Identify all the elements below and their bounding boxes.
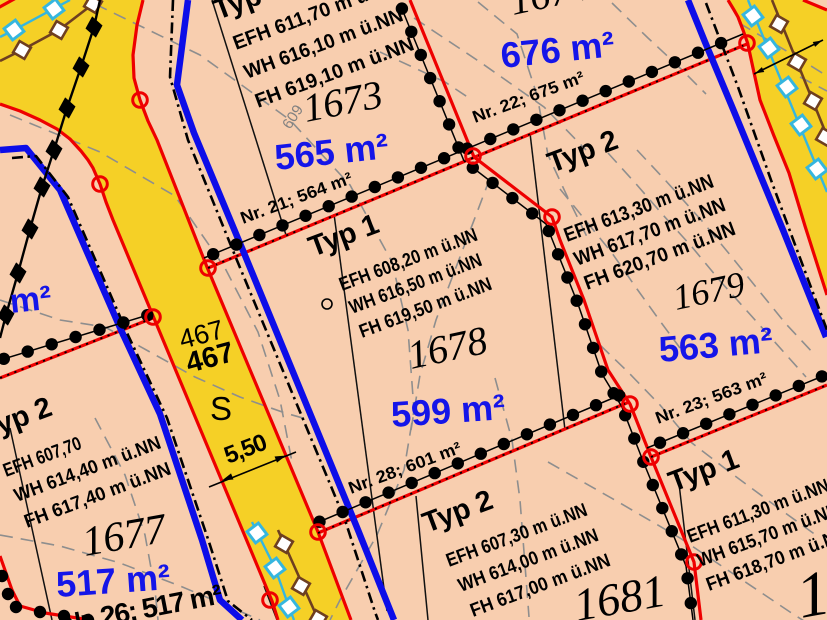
svg-text:m²: m² (8, 279, 53, 321)
svg-text:599 m²: 599 m² (390, 386, 507, 435)
svg-text:S: S (210, 390, 232, 427)
